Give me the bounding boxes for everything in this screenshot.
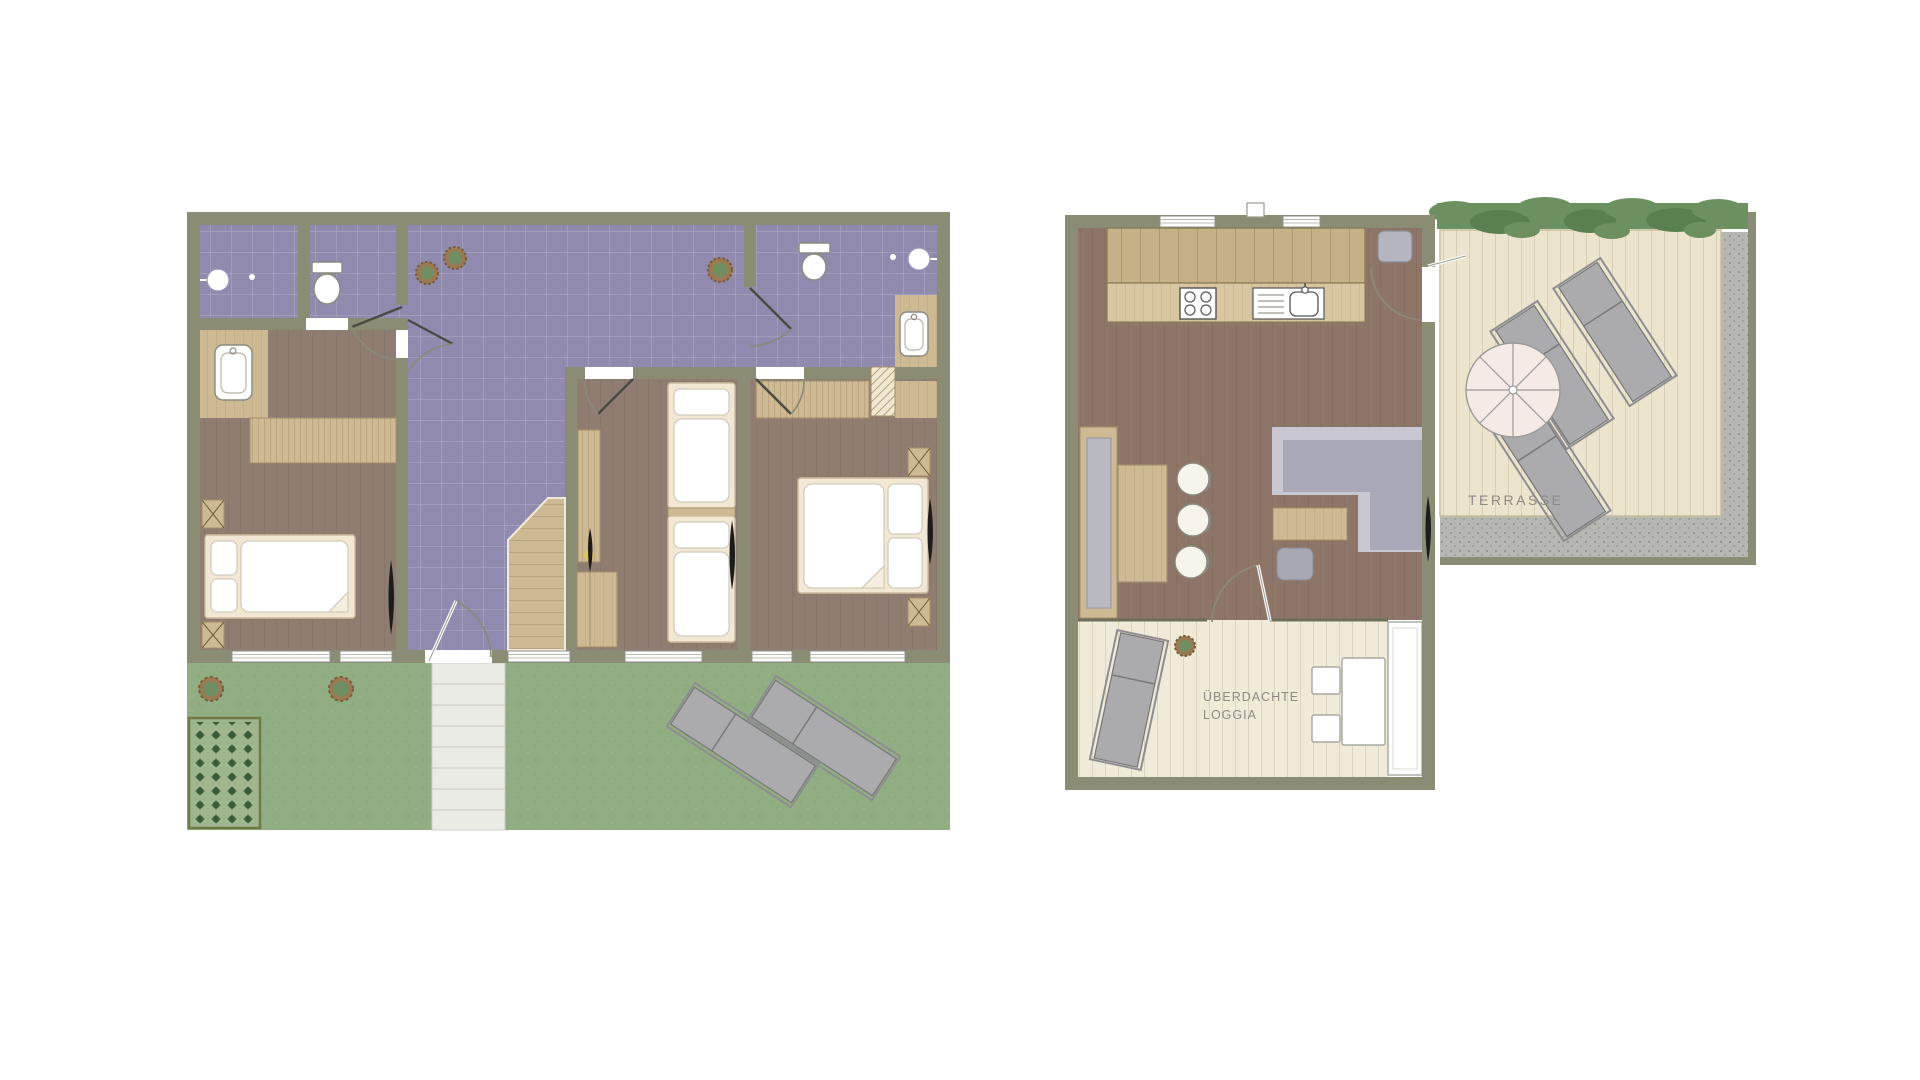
sink-icon bbox=[1253, 283, 1324, 319]
desk bbox=[577, 572, 617, 647]
terrace-label: TERRASSE bbox=[1468, 492, 1563, 508]
stool-icon bbox=[1177, 463, 1210, 495]
plant-icon bbox=[1175, 636, 1195, 656]
kitchen-counter bbox=[1107, 283, 1365, 322]
left-plan bbox=[187, 212, 950, 830]
floor-plan-drawing: TERRASSE bbox=[0, 0, 1920, 1080]
wc-threshold bbox=[306, 318, 348, 330]
right-plan: TERRASSE bbox=[1065, 197, 1756, 790]
terrace-door-gap bbox=[1422, 267, 1435, 322]
toilet-icon bbox=[312, 262, 342, 304]
kitchen-cabinets bbox=[1107, 228, 1365, 283]
plant-icon bbox=[416, 262, 438, 284]
loggia-label-line1: ÜBERDACHTE bbox=[1203, 690, 1299, 704]
coffee-table bbox=[1273, 508, 1347, 540]
bed-divider bbox=[668, 508, 735, 516]
garden-bed bbox=[189, 718, 260, 828]
stove-icon bbox=[1180, 288, 1216, 319]
bathtub-icon bbox=[215, 345, 252, 400]
stool-icon bbox=[1177, 504, 1210, 536]
ottoman bbox=[1277, 548, 1313, 580]
plant-icon bbox=[708, 258, 732, 282]
sideboard bbox=[1080, 427, 1117, 618]
loggia-label-line2: LOGGIA bbox=[1203, 708, 1257, 722]
plant-icon bbox=[444, 247, 466, 269]
fridge-icon bbox=[1378, 231, 1412, 262]
wardrobe bbox=[250, 418, 396, 463]
garden bbox=[187, 663, 950, 830]
wardrobe bbox=[756, 381, 937, 418]
stool-icon bbox=[1175, 546, 1208, 578]
double-bed-icon bbox=[205, 535, 355, 618]
bush-icon bbox=[199, 677, 223, 701]
terrace: TERRASSE bbox=[1429, 197, 1756, 565]
hatched-duct bbox=[871, 367, 895, 416]
bathtub-icon bbox=[900, 312, 928, 356]
dining-table bbox=[1118, 465, 1167, 582]
terrace-wall bbox=[1748, 212, 1756, 565]
single-bed-icon bbox=[668, 516, 735, 642]
parasol-icon bbox=[1466, 343, 1560, 437]
single-bed-icon bbox=[668, 383, 735, 508]
bush-icon bbox=[329, 677, 353, 701]
double-bed-icon bbox=[798, 478, 928, 593]
exterior-stairs bbox=[432, 663, 505, 830]
